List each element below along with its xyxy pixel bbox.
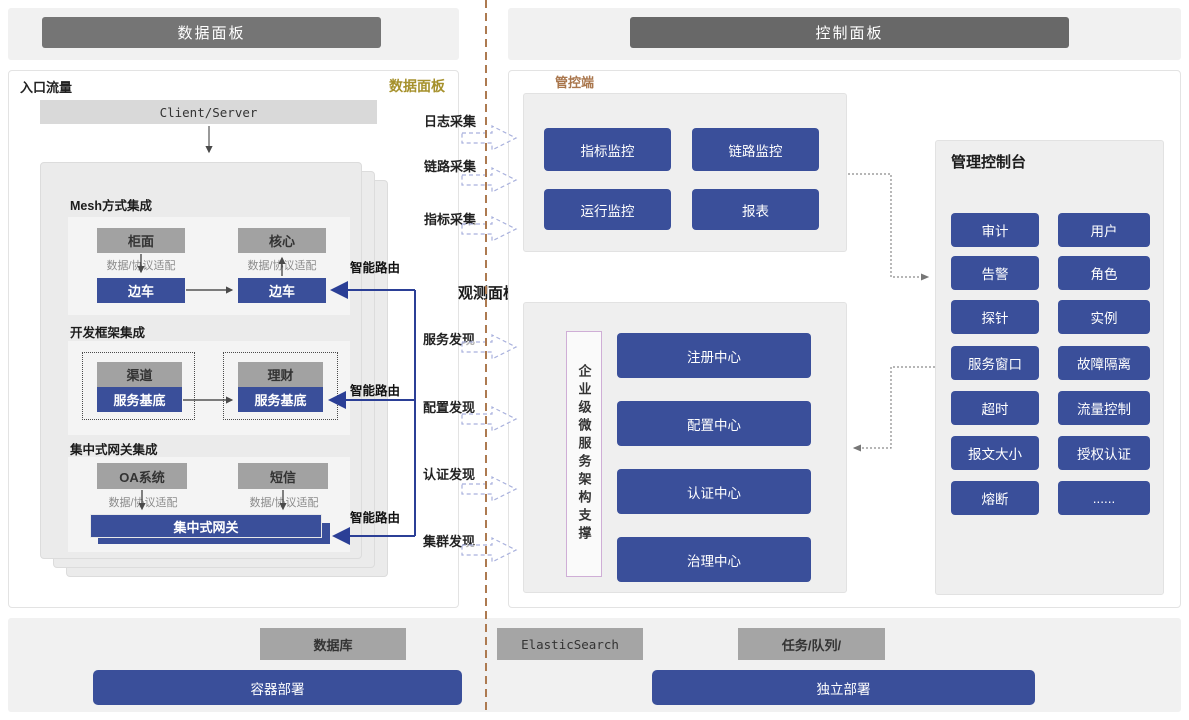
architecture-diagram: 数据面板 控制面板 入口流量 数据面板 Client/Server Mesh方式… bbox=[0, 0, 1189, 720]
console-more-box: ...... bbox=[1058, 481, 1150, 515]
adapter-label-gw-right: 数据/协议适配 bbox=[240, 494, 328, 510]
sidecar-left: 边车 bbox=[97, 278, 185, 303]
management-console-panel: 管理控制台 审计 用户 告警 角色 探针 实例 服务窗口 故障隔离 超时 流量控… bbox=[935, 140, 1164, 595]
service-base-left: 服务基底 bbox=[97, 387, 182, 412]
management-console-title: 管理控制台 bbox=[951, 151, 1026, 172]
control-plane-header: 控制面板 bbox=[630, 17, 1069, 48]
registry-center-box: 注册中心 bbox=[617, 333, 811, 378]
auth-center-box: 认证中心 bbox=[617, 469, 811, 514]
console-role-box: 角色 bbox=[1058, 256, 1150, 290]
console-service-window-box: 服务窗口 bbox=[951, 346, 1039, 380]
mesh-app-counter: 柜面 bbox=[97, 228, 185, 253]
control-side-label: 管控端 bbox=[555, 72, 594, 91]
console-circuit-breaker-box: 熔断 bbox=[951, 481, 1039, 515]
smart-route-label-2: 智能路由 bbox=[350, 380, 410, 399]
container-deploy-bar: 容器部署 bbox=[93, 670, 462, 705]
console-fault-isolation-box: 故障隔离 bbox=[1058, 346, 1150, 380]
entry-traffic-label: 入口流量 bbox=[20, 77, 72, 96]
console-authz-box: 授权认证 bbox=[1058, 436, 1150, 470]
smart-route-label-1: 智能路由 bbox=[350, 257, 410, 276]
console-probe-box: 探针 bbox=[951, 300, 1039, 334]
flow-label-auth-discovery: 认证发现 bbox=[423, 464, 475, 483]
observe-panel: 企业级微服务架构支撑 注册中心 配置中心 认证中心 治理中心 bbox=[523, 302, 847, 593]
data-plane-corner-label: 数据面板 bbox=[355, 76, 445, 96]
gateway-section-title: 集中式网关集成 bbox=[70, 439, 158, 458]
report-box: 报表 bbox=[692, 189, 819, 230]
config-center-box: 配置中心 bbox=[617, 401, 811, 446]
console-user-box: 用户 bbox=[1058, 213, 1150, 247]
mesh-app-core: 核心 bbox=[238, 228, 326, 253]
flow-label-trace-collect: 链路采集 bbox=[424, 156, 476, 175]
gateway-app-oa: OA系统 bbox=[97, 463, 187, 489]
flow-label-log-collect: 日志采集 bbox=[424, 111, 476, 130]
console-message-size-box: 报文大小 bbox=[951, 436, 1039, 470]
flow-label-cluster-discovery: 集群发现 bbox=[423, 531, 475, 550]
framework-app-wealth: 理财 bbox=[238, 362, 323, 387]
database-box: 数据库 bbox=[260, 628, 406, 660]
console-timeout-box: 超时 bbox=[951, 391, 1039, 425]
mesh-section-title: Mesh方式集成 bbox=[70, 195, 152, 214]
task-queue-box: 任务/队列/ bbox=[738, 628, 885, 660]
runtime-monitor-box: 运行监控 bbox=[544, 189, 671, 230]
elasticsearch-box: ElasticSearch bbox=[497, 628, 643, 660]
central-gateway-bar: 集中式网关 bbox=[90, 514, 322, 538]
framework-app-channel: 渠道 bbox=[97, 362, 182, 387]
monitor-panel: 指标监控 链路监控 运行监控 报表 bbox=[523, 93, 847, 252]
adapter-label-mesh-right: 数据/协议适配 bbox=[238, 257, 326, 273]
adapter-label-mesh-left: 数据/协议适配 bbox=[97, 257, 185, 273]
governance-center-box: 治理中心 bbox=[617, 537, 811, 582]
data-plane-header: 数据面板 bbox=[42, 17, 381, 48]
gateway-app-sms: 短信 bbox=[238, 463, 328, 489]
console-audit-box: 审计 bbox=[951, 213, 1039, 247]
flow-label-config-discovery: 配置发现 bbox=[423, 397, 475, 416]
plane-divider bbox=[485, 0, 487, 714]
flow-label-service-discovery: 服务发现 bbox=[423, 329, 475, 348]
trace-monitor-box: 链路监控 bbox=[692, 128, 819, 171]
framework-section-title: 开发框架集成 bbox=[70, 322, 145, 341]
infrastructure-strip: 数据库 ElasticSearch 任务/队列/ 容器部署 独立部署 bbox=[8, 618, 1181, 712]
adapter-label-gw-left: 数据/协议适配 bbox=[99, 494, 187, 510]
flow-label-metric-collect: 指标采集 bbox=[424, 209, 476, 228]
console-instance-box: 实例 bbox=[1058, 300, 1150, 334]
standalone-deploy-bar: 独立部署 bbox=[652, 670, 1035, 705]
metric-monitor-box: 指标监控 bbox=[544, 128, 671, 171]
console-flow-control-box: 流量控制 bbox=[1058, 391, 1150, 425]
smart-route-label-3: 智能路由 bbox=[350, 507, 410, 526]
microservice-support-vertical-label: 企业级微服务架构支撑 bbox=[566, 331, 602, 577]
client-server-bar: Client/Server bbox=[40, 100, 377, 124]
service-base-right: 服务基底 bbox=[238, 387, 323, 412]
console-alert-box: 告警 bbox=[951, 256, 1039, 290]
sidecar-right: 边车 bbox=[238, 278, 326, 303]
